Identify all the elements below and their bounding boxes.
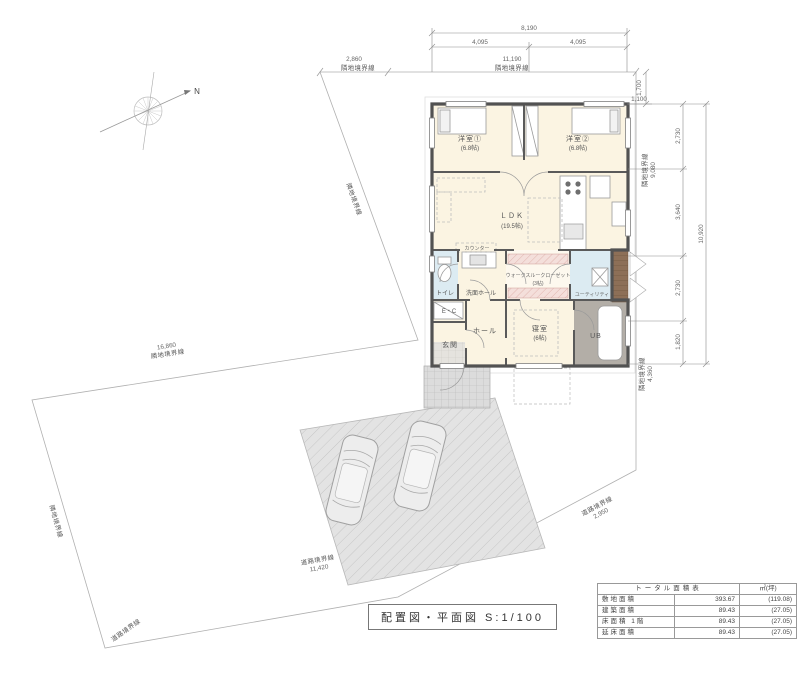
area-table-header: トータル面積表 ㎡(坪) (598, 584, 797, 595)
kitchen-sink (564, 224, 583, 239)
row-floor-area-m2: 89.43 (675, 617, 740, 628)
house: 洋室① (6.8帖) 洋室② (6.8帖) ＬＤＫ (19.5帖) カウンター … (424, 97, 646, 408)
label-genkan: 玄関 (442, 340, 458, 349)
dim-right-lower: 4,360 (647, 366, 654, 382)
dim-right-upper: 9,080 (650, 162, 657, 178)
row-building-area-m2: 89.43 (675, 606, 740, 617)
dim-site-top: 11,190 (503, 56, 522, 63)
label-yoshitsu1: 洋室① (458, 134, 482, 143)
label-hall: ホール (473, 327, 497, 335)
cupboard (612, 202, 626, 226)
boundary-label-right-upper: 隣地境界線 (640, 153, 649, 187)
table-row: 敷地面積 393.67 (119.08) (598, 595, 797, 606)
table-row: 床面積 1階 89.43 (27.05) (598, 617, 797, 628)
label-yoshitsu2: 洋室② (566, 134, 590, 143)
label-ldk: ＬＤＫ (500, 212, 524, 220)
boundary-label-top: 隣地境界線 (495, 63, 529, 72)
boundary-label-left-diag: 隣地境界線 (344, 182, 364, 217)
label-ub: UB (590, 333, 602, 340)
table-row: 建築面積 89.43 (27.05) (598, 606, 797, 617)
row-total-floor-m2: 89.43 (675, 628, 740, 639)
row-total-floor-label: 延床面積 (598, 628, 675, 639)
dim-top-total: 8,190 (521, 25, 537, 32)
label-utility: ユーティリティ (575, 292, 609, 298)
refrigerator (590, 176, 610, 198)
label-counter: カウンター (464, 245, 489, 252)
deck-awning-marks (630, 252, 646, 302)
dim-top-left: 4,095 (472, 39, 488, 46)
table-row: 延床面積 89.43 (27.05) (598, 628, 797, 639)
dim-right-4: 1,820 (675, 334, 682, 350)
label-wtc-size: (3帖) (532, 280, 543, 287)
row-site-area-m2: 393.67 (675, 595, 740, 606)
row-total-floor-tsubo: (27.05) (740, 628, 797, 639)
label-toilet: トイレ (436, 291, 454, 297)
label-yoshitsu2-size: (6.8帖) (569, 144, 587, 152)
boundary-label-right-lower: 隣地境界線 (637, 357, 646, 391)
parking-area (300, 398, 545, 585)
dim-offset-v: 1,700 (636, 80, 643, 96)
toilet-tank (438, 257, 451, 264)
dim-offset-h: 1,100 (631, 96, 647, 103)
boundary-label-road-bottom-left: 道路境界線 (109, 616, 142, 643)
area-table: トータル面積表 ㎡(坪) 敷地面積 393.67 (119.08) 建築面積 8… (597, 583, 797, 639)
dim-site-topleft: 2,860 (346, 56, 362, 63)
site-plan-canvas: N (0, 0, 800, 692)
row-site-area-tsubo: (119.08) (740, 595, 797, 606)
dim-right-total: 10,920 (698, 224, 705, 244)
row-site-area-label: 敷地面積 (598, 595, 675, 606)
wood-deck (612, 250, 628, 302)
north-label: N (194, 87, 200, 96)
label-senmen: 洗面ホール (466, 289, 496, 297)
label-ldk-size: (19.5帖) (501, 222, 523, 230)
label-yoshitsu1-size: (6.8帖) (461, 144, 479, 152)
boundary-label-left-lower: 隣地境界線 (47, 504, 65, 539)
north-arrow-icon (184, 90, 191, 95)
dim-top-right: 4,095 (570, 39, 586, 46)
dim-right-2: 3,640 (675, 204, 682, 220)
row-building-area-tsubo: (27.05) (740, 606, 797, 617)
compass: N (100, 72, 200, 150)
boundary-label-topleft: 隣地境界線 (341, 63, 375, 72)
area-table-unit: ㎡(坪) (740, 584, 797, 595)
dim-right-1: 2,730 (675, 128, 682, 144)
terrace-dashed (514, 368, 570, 404)
drawing-title: 配置図・平面図 S:1/100 (368, 604, 557, 630)
row-floor-area-label: 床面積 1階 (598, 617, 675, 628)
label-wtc: ウォークスルークローゼット (506, 272, 571, 279)
label-shinshitsu: 寝室 (532, 324, 548, 333)
area-table-title: トータル面積表 (598, 584, 740, 595)
dim-right-3: 2,730 (675, 280, 682, 296)
label-ec: E・C (442, 309, 457, 315)
label-shinshitsu-size: (6帖) (533, 334, 546, 342)
row-floor-area-tsubo: (27.05) (740, 617, 797, 628)
porch-tiles (424, 366, 490, 408)
row-building-area-label: 建築面積 (598, 606, 675, 617)
